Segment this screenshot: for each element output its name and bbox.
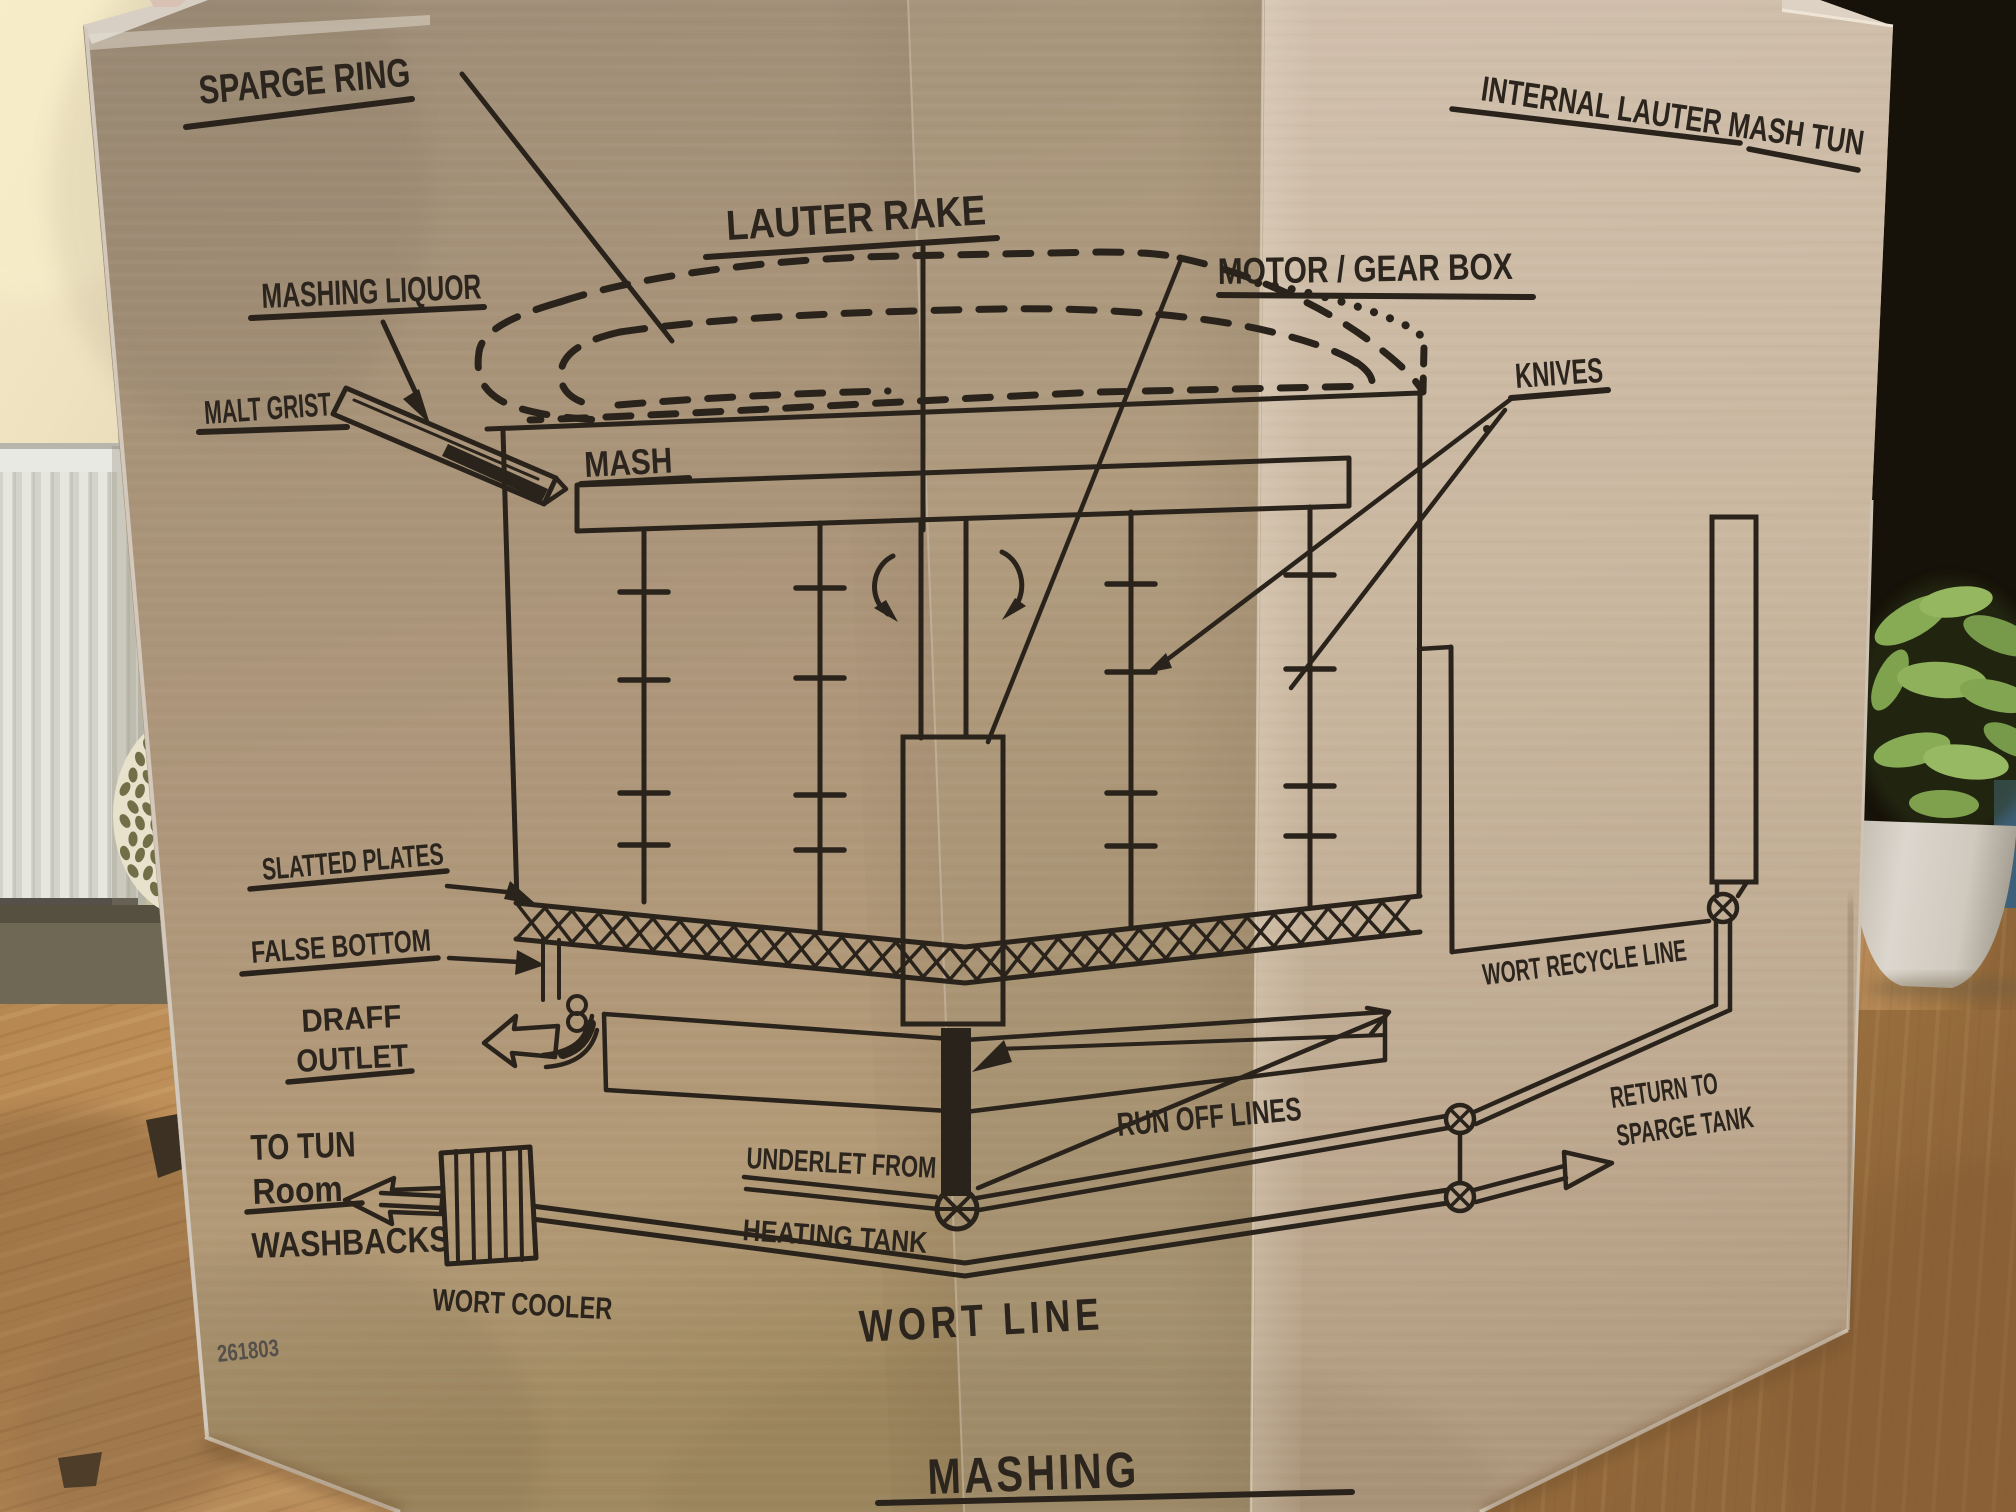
svg-text:DRAFF: DRAFF (300, 998, 402, 1039)
svg-text:WASHBACKS: WASHBACKS (251, 1218, 450, 1266)
svg-text:MOTOR / GEAR BOX: MOTOR / GEAR BOX (1217, 246, 1513, 292)
svg-text:TO TUN: TO TUN (250, 1123, 356, 1168)
